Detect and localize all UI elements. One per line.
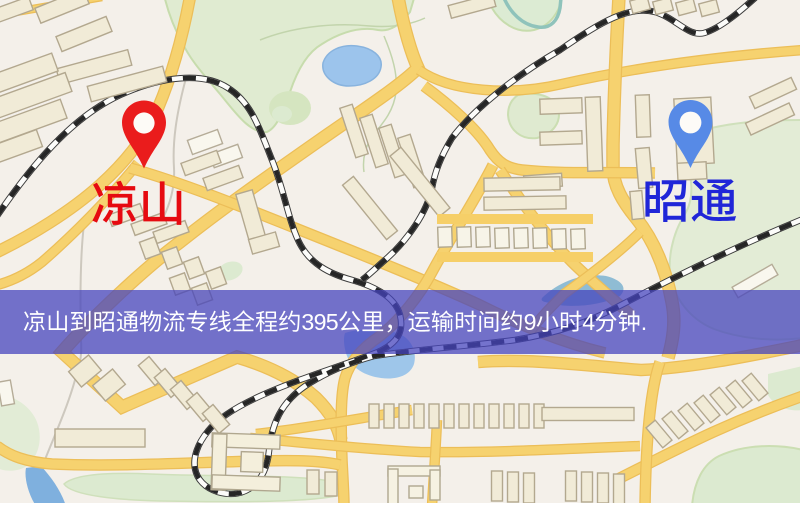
- svg-text:9: 9: [314, 309, 327, 335]
- svg-text:3: 3: [301, 309, 314, 335]
- svg-text:.: .: [641, 309, 647, 335]
- svg-text:5: 5: [326, 309, 339, 335]
- svg-text:9: 9: [524, 309, 537, 335]
- svg-text:4: 4: [582, 309, 595, 335]
